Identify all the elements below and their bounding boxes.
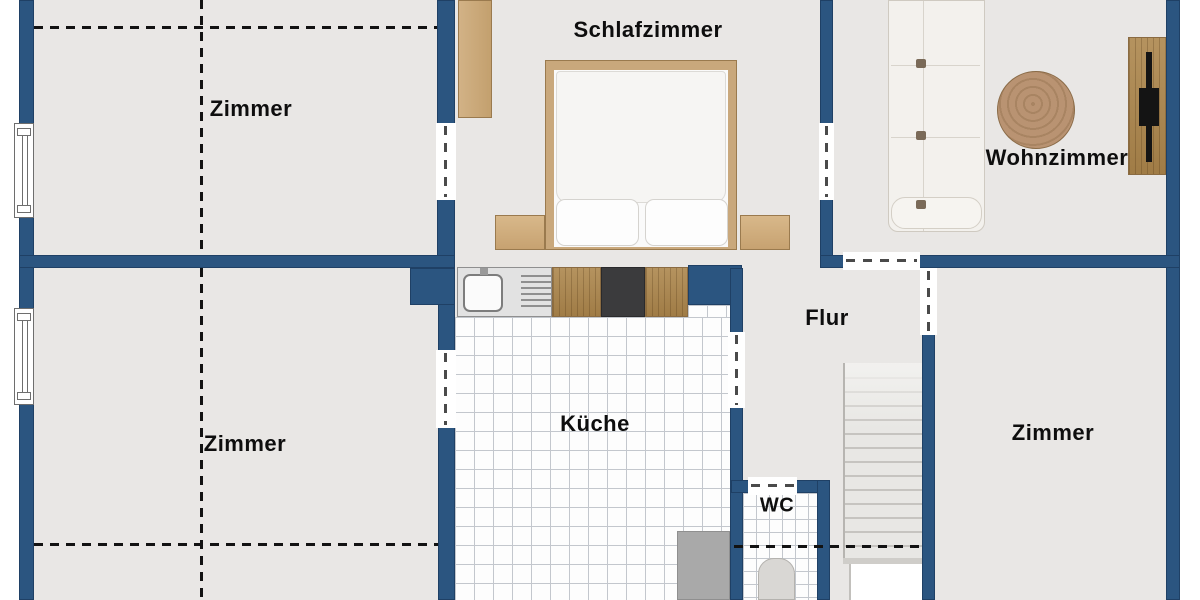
wall-kitchen-left: [438, 268, 455, 600]
staircase-fade: [845, 363, 922, 483]
window-cap-bottom: [17, 205, 31, 213]
wall-wc-right: [817, 480, 830, 600]
slope-line-vertical-top: [200, 0, 203, 255]
slope-line-vertical-bottom: [200, 268, 203, 600]
door-opening-kitchen-right: [728, 332, 745, 408]
sofa-gap-3: [916, 200, 926, 209]
staircase-lower-flight: [849, 564, 922, 600]
wall-outer-right: [1166, 0, 1180, 600]
slope-line-horizontal-flur: [734, 545, 925, 548]
toilet: [758, 558, 795, 600]
sofa: [888, 0, 985, 232]
kitchen-tile-floor-strip: [688, 305, 730, 317]
door-opening-wc: [748, 477, 797, 495]
stove: [601, 267, 645, 317]
wall-outer-left: [19, 0, 34, 600]
door-opening-schlafzimmer-right: [819, 123, 834, 200]
kitchen-counter-wood-left: [552, 267, 601, 317]
window-symbol-top-left: [14, 123, 34, 218]
slope-line-horizontal-top: [34, 26, 437, 29]
wardrobe: [458, 0, 492, 118]
wall-kitchen-right: [730, 268, 743, 600]
window-cap-top: [17, 128, 31, 136]
window-symbol-bottom-left: [14, 308, 34, 405]
door-opening-wohnzimmer-to-flur: [843, 252, 920, 270]
tv-body: [1139, 88, 1159, 126]
window-pane: [22, 318, 28, 395]
sink: [463, 274, 503, 312]
door-opening-flur-to-zimmer: [920, 268, 937, 335]
pillow-left: [556, 199, 639, 246]
pillow-right: [645, 199, 728, 246]
kitchen-counter-wood-right: [645, 267, 688, 317]
room-label-schlafzimmer: Schlafzimmer: [573, 17, 722, 43]
window-cap-top: [17, 313, 31, 321]
door-opening-schlafzimmer-left: [436, 123, 456, 200]
nightstand-right: [740, 215, 790, 250]
faucet-icon: [480, 268, 488, 275]
floor-plan: Zimmer Schlafzimmer Wohnzimmer Zimmer Kü…: [0, 0, 1200, 600]
window-cap-bottom: [17, 392, 31, 400]
room-label-zimmer-bottom-left: Zimmer: [204, 431, 286, 457]
tv-sideboard: [1128, 37, 1170, 175]
room-label-zimmer-top-left: Zimmer: [210, 96, 292, 122]
window-pane: [22, 133, 28, 208]
sofa-armrest: [891, 197, 982, 229]
nightstand-left: [495, 215, 545, 250]
slope-line-horizontal-bottom-left: [34, 543, 438, 546]
sofa-gap-2: [916, 131, 926, 140]
room-label-zimmer-right: Zimmer: [1012, 420, 1094, 446]
kitchen-sink-unit: [457, 267, 552, 317]
fridge: [677, 531, 730, 600]
sink-drainer: [521, 275, 551, 311]
duvet: [556, 71, 726, 203]
bed: [545, 60, 737, 250]
wall-middle-left: [19, 255, 455, 268]
door-opening-kitchen-left: [436, 350, 456, 428]
room-label-flur: Flur: [805, 305, 849, 331]
sofa-gap-1: [916, 59, 926, 68]
room-label-wc: WC: [760, 495, 794, 518]
room-label-kueche: Küche: [560, 411, 630, 437]
room-label-wohnzimmer: Wohnzimmer: [986, 145, 1129, 171]
coffee-table: [997, 71, 1075, 149]
sofa-cushion-line-1: [891, 65, 980, 66]
wall-corner-block-left: [410, 268, 455, 305]
sofa-cushion-line-2: [891, 137, 980, 138]
